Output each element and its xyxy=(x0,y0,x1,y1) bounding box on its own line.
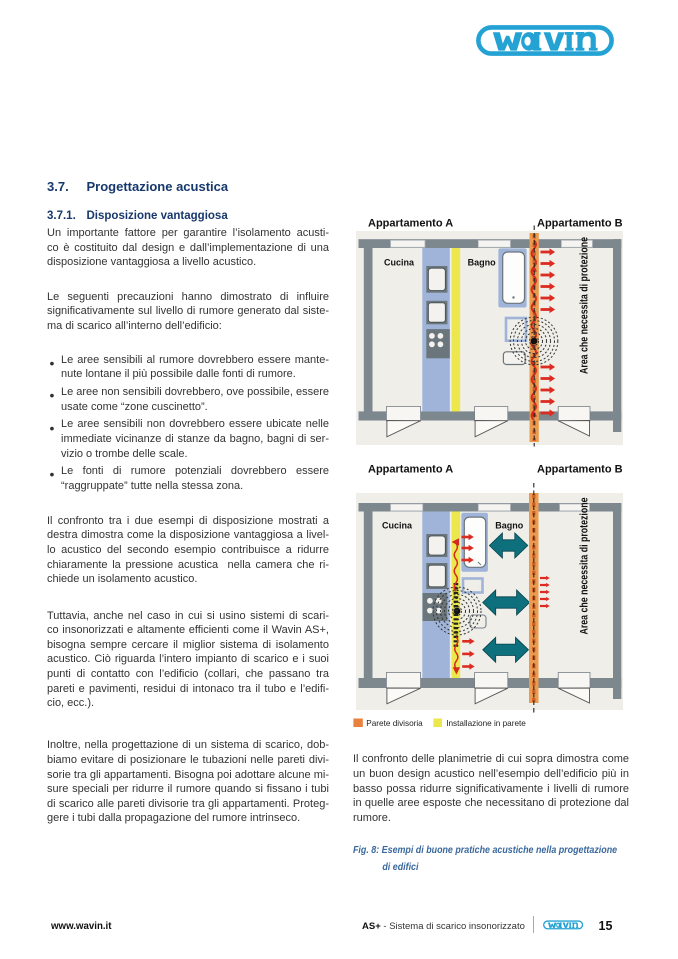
svg-text:Cucina: Cucina xyxy=(382,521,413,531)
svg-text:Appartamento A: Appartamento A xyxy=(368,464,453,476)
svg-text:Bagno: Bagno xyxy=(495,521,524,531)
svg-text:Parete divisoria: Parete divisoria xyxy=(366,719,423,728)
svg-text:Bagno: Bagno xyxy=(468,258,497,268)
svg-text:Installazione in parete: Installazione in parete xyxy=(446,719,526,728)
svg-text:Area che necessita di protezio: Area che necessita di protezione xyxy=(579,498,591,635)
svg-text:Appartamento A: Appartamento A xyxy=(368,218,453,230)
svg-text:Appartamento B: Appartamento B xyxy=(537,464,623,476)
svg-text:Area che necessita di protezio: Area che necessita di protezione xyxy=(579,237,591,374)
svg-text:Cucina: Cucina xyxy=(384,258,415,268)
svg-text:Appartamento B: Appartamento B xyxy=(537,218,623,230)
